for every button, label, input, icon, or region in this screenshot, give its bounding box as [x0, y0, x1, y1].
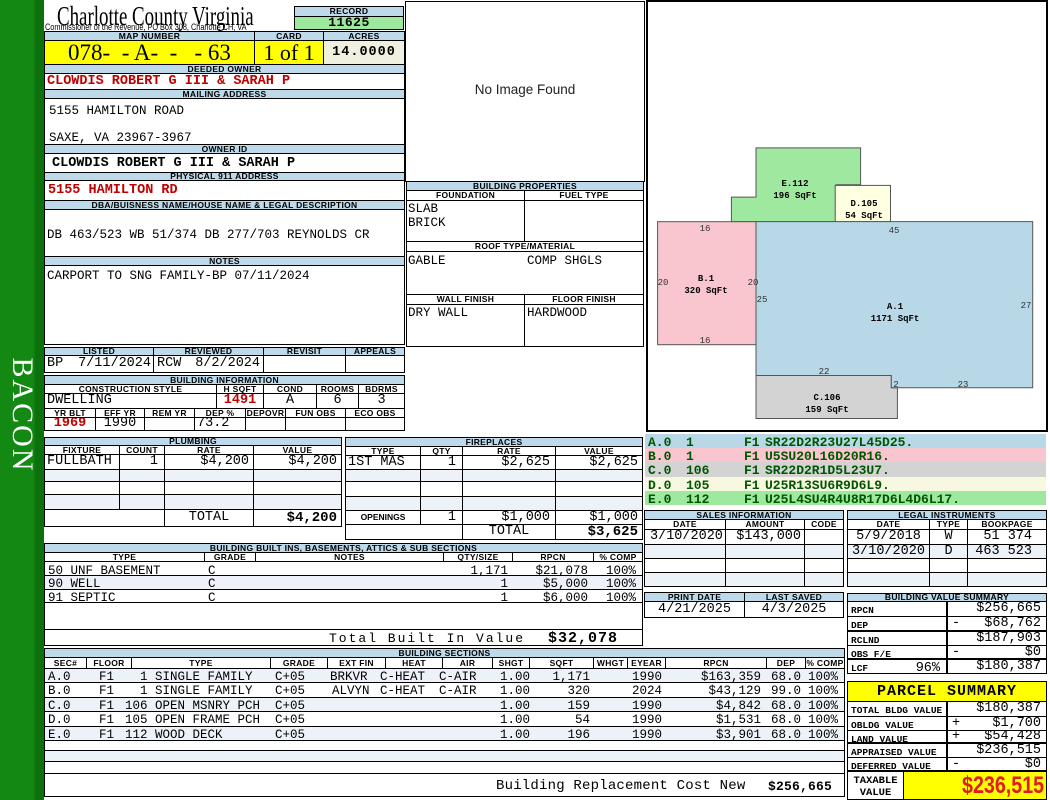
- svg-text:20: 20: [748, 278, 759, 288]
- svg-text:320 SqFt: 320 SqFt: [684, 286, 727, 296]
- svg-text:A.1: A.1: [887, 302, 904, 312]
- svg-text:23: 23: [958, 380, 969, 390]
- svg-text:22: 22: [819, 367, 830, 377]
- svg-text:45: 45: [889, 226, 900, 236]
- svg-text:B.1: B.1: [698, 274, 715, 284]
- svg-text:16: 16: [700, 336, 711, 346]
- svg-text:20: 20: [658, 278, 669, 288]
- svg-text:159 SqFt: 159 SqFt: [805, 405, 848, 415]
- svg-text:D.105: D.105: [850, 199, 877, 209]
- svg-text:54 SqFt: 54 SqFt: [845, 211, 883, 221]
- svg-text:1171 SqFt: 1171 SqFt: [871, 314, 920, 324]
- svg-text:16: 16: [700, 224, 711, 234]
- svg-text:25: 25: [757, 295, 768, 305]
- svg-text:196 SqFt: 196 SqFt: [773, 191, 816, 201]
- svg-text:2: 2: [893, 380, 898, 390]
- svg-text:E.112: E.112: [781, 179, 808, 189]
- svg-text:C.106: C.106: [813, 393, 840, 403]
- svg-text:27: 27: [1021, 301, 1032, 311]
